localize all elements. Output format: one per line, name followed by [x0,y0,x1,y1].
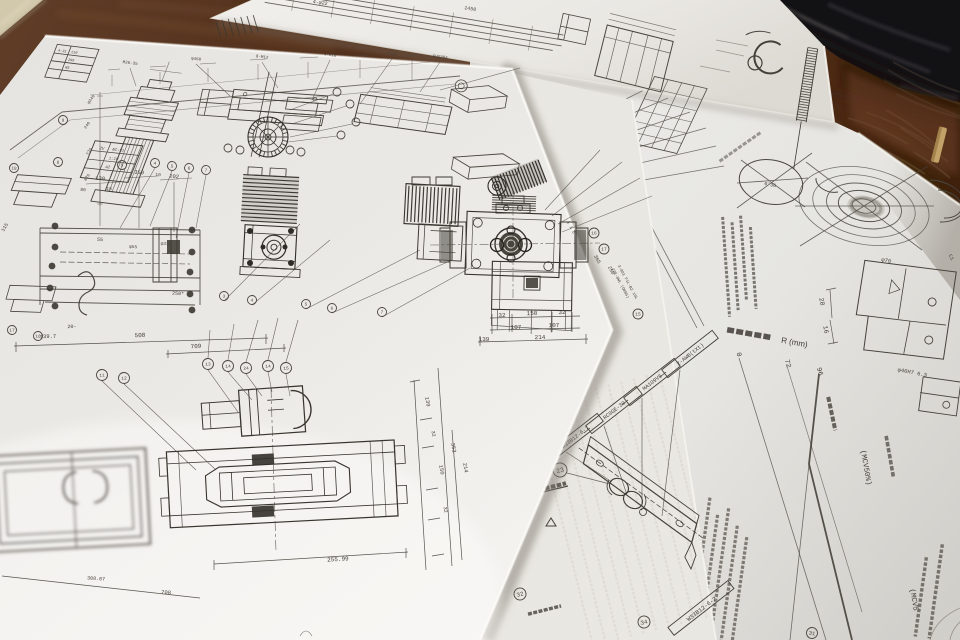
svg-text:17: 17 [601,247,607,253]
svg-text:18: 18 [11,165,17,171]
svg-text:32: 32 [558,309,566,316]
svg-text:55: 55 [97,237,103,243]
svg-text:24: 24 [243,365,249,371]
svg-text:255.99: 255.99 [327,555,349,563]
svg-text:32: 32 [442,506,449,513]
svg-text:20-: 20- [67,324,76,330]
svg-text:350: 350 [134,169,144,177]
svg-text:308.07: 308.07 [87,575,105,582]
svg-text:708: 708 [161,589,171,597]
svg-text:φ33D: φ33D [160,241,171,248]
svg-text:107: 107 [511,324,522,331]
svg-text:11: 11 [99,372,105,378]
svg-text:18: 18 [106,186,112,192]
svg-text:14: 14 [265,363,271,369]
svg-text:12: 12 [121,375,127,381]
svg-text:214: 214 [535,334,546,341]
svg-text:250*: 250* [172,291,184,298]
svg-text:32: 32 [430,430,437,437]
svg-text:16: 16 [591,231,597,237]
svg-text:15: 15 [635,312,641,318]
svg-text:10: 10 [155,172,161,178]
svg-text:709: 709 [190,343,201,350]
svg-text:150: 150 [527,310,538,317]
svg-text:80: 80 [80,187,86,193]
svg-text:130: 130 [95,175,105,183]
svg-text:15: 15 [283,365,289,371]
svg-text:139: 139 [479,336,490,343]
svg-text:φ55: φ55 [129,244,138,251]
svg-text:508: 508 [134,332,145,339]
svg-text:139.7: 139.7 [40,333,57,341]
svg-text:107: 107 [549,322,560,329]
svg-text:17: 17 [9,328,15,334]
svg-text:14: 14 [225,363,231,369]
svg-text:13: 13 [205,361,211,367]
svg-text:32: 32 [498,312,506,319]
